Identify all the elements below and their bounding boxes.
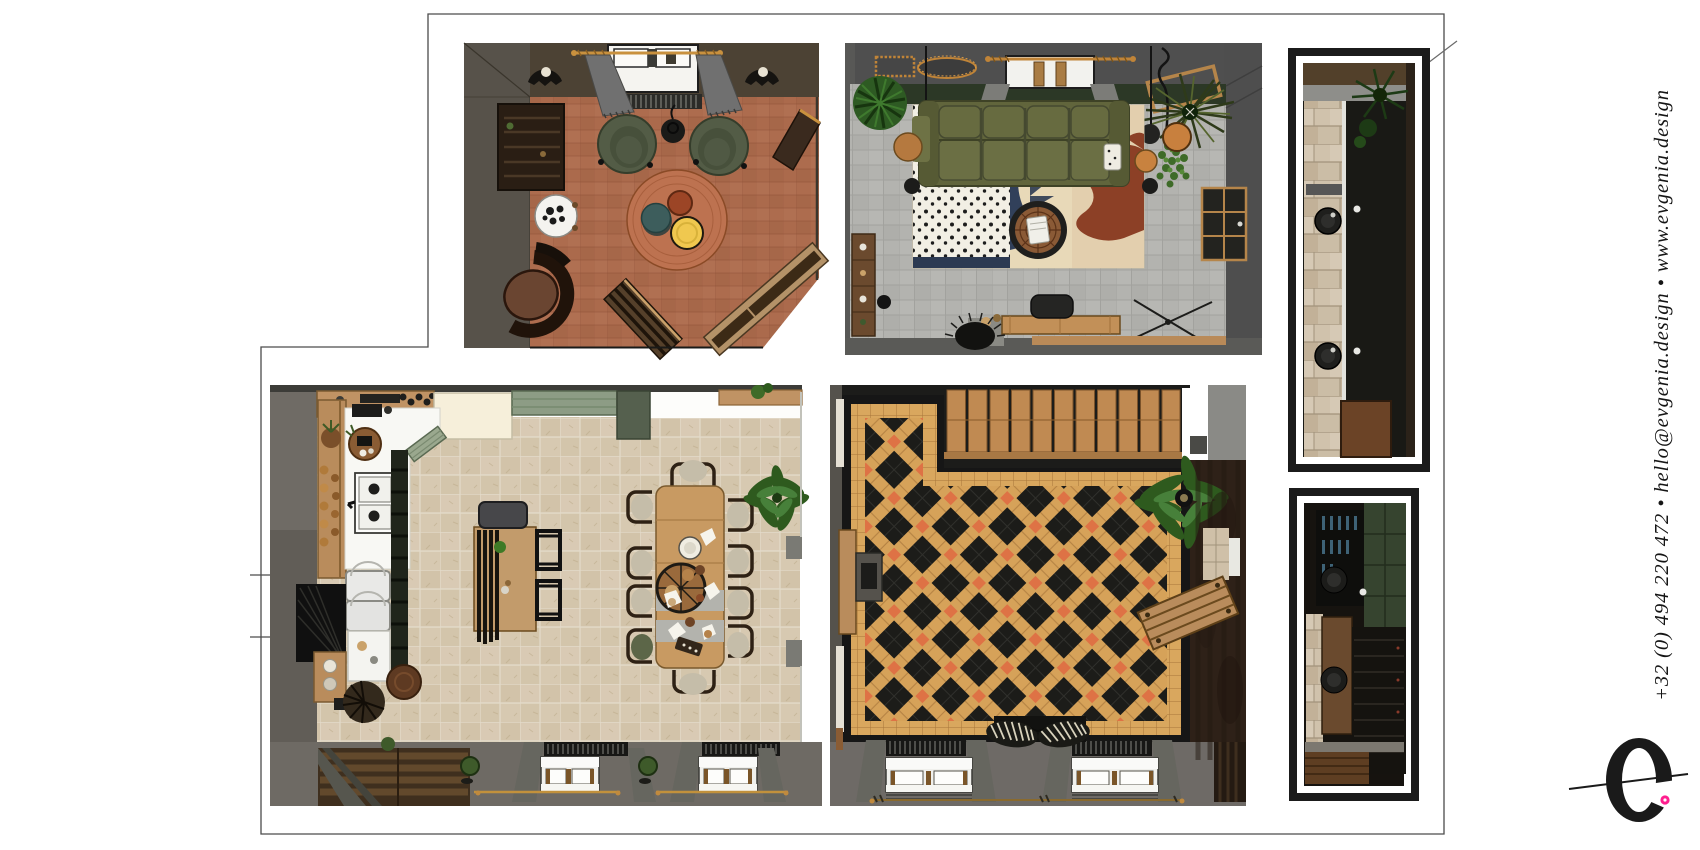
svg-text:+32 (0) 494 220 472 • hello@ev: +32 (0) 494 220 472 • hello@evgenia.desi… bbox=[1651, 89, 1673, 701]
